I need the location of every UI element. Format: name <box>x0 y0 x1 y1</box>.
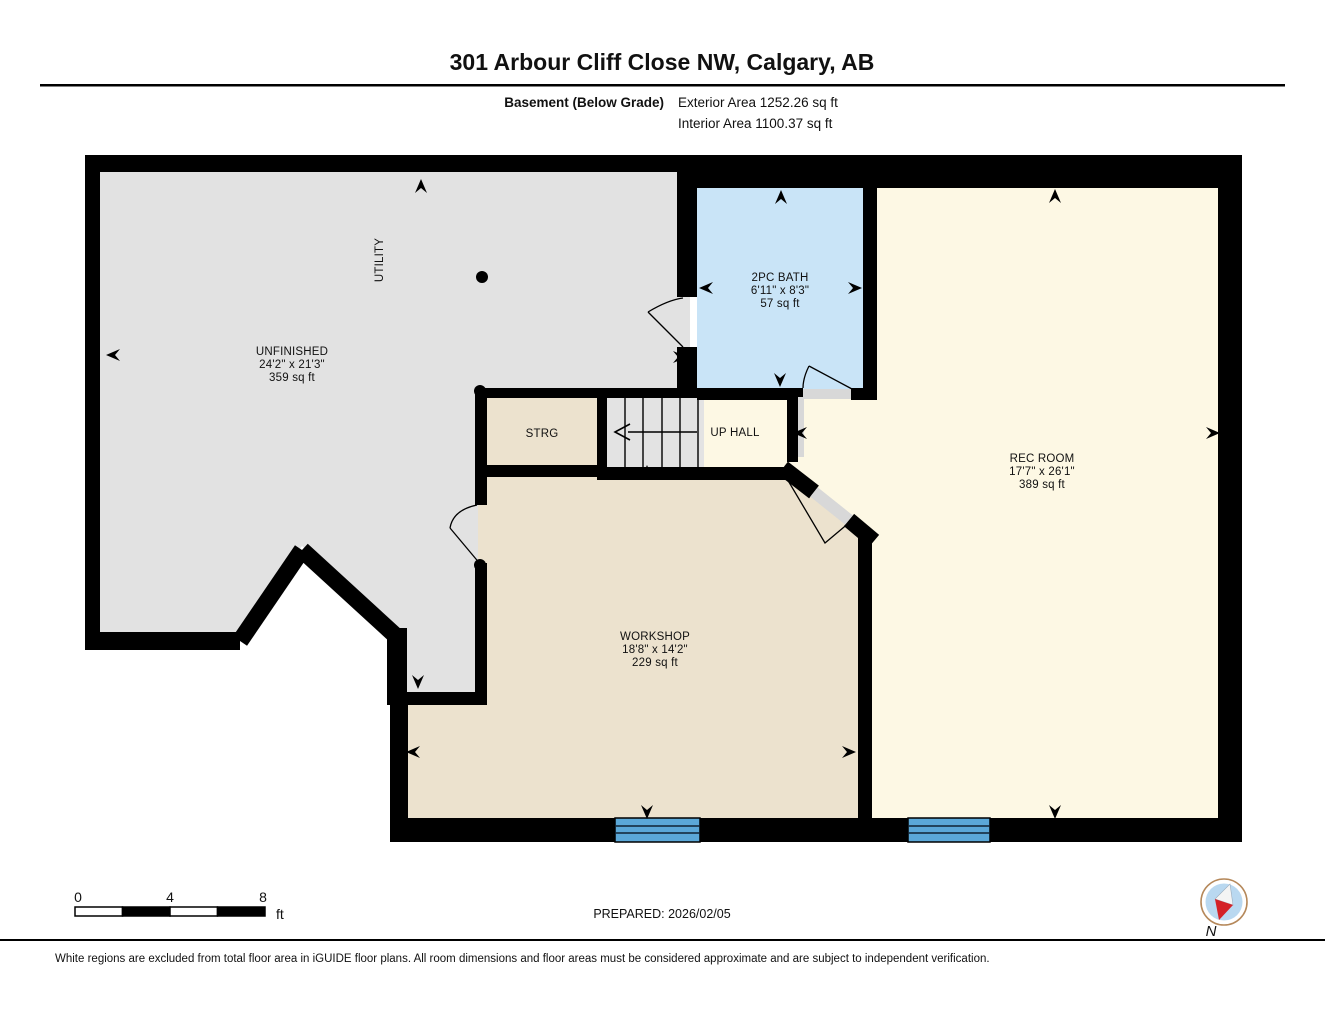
utility-name: UTILITY <box>374 238 386 282</box>
floorplan-page: 301 Arbour Cliff Close NW, Calgary, AB B… <box>0 0 1325 1024</box>
footer-divider <box>0 939 1325 941</box>
bath-door-threshold <box>803 389 851 399</box>
support-post <box>476 271 488 283</box>
wall-post <box>474 385 486 397</box>
scale-unit: ft <box>276 906 284 922</box>
bath-name: 2PC BATH <box>752 272 809 284</box>
floorplan-canvas: 301 Arbour Cliff Close NW, Calgary, AB B… <box>0 0 1325 1024</box>
room-fills <box>92 160 1236 836</box>
unfinished-area: 359 sq ft <box>269 372 316 384</box>
workshop-dimensions: 18'8" x 14'2" <box>622 644 688 656</box>
rec-room-name: REC ROOM <box>1010 453 1075 465</box>
disclaimer: White regions are excluded from total fl… <box>55 953 990 965</box>
hall-opening-strip <box>798 397 804 457</box>
window-icon <box>615 818 700 842</box>
unfinished-dimensions: 24'2" x 21'3" <box>259 359 325 371</box>
header: 301 Arbour Cliff Close NW, Calgary, AB B… <box>40 49 1285 131</box>
page-title: 301 Arbour Cliff Close NW, Calgary, AB <box>450 49 875 75</box>
up-hall-name: UP HALL <box>710 427 760 439</box>
bath-area: 57 sq ft <box>760 298 800 310</box>
wall-post <box>474 559 486 571</box>
compass-icon: N <box>1201 879 1247 940</box>
window-icon <box>908 818 990 842</box>
strg-name: STRG <box>526 428 559 440</box>
footer: 0 4 8 ft PREPARED: 2026/02/05 N White re… <box>0 879 1325 965</box>
floor-label: Basement (Below Grade) <box>504 95 664 110</box>
scale-tick-4: 4 <box>166 889 174 905</box>
north-label: N <box>1206 923 1217 940</box>
prepared-date: PREPARED: 2026/02/05 <box>593 907 730 921</box>
rec-room-area: 389 sq ft <box>1019 479 1066 491</box>
exterior-area: Exterior Area 1252.26 sq ft <box>678 95 838 110</box>
header-divider <box>40 84 1285 87</box>
unfinished-name: UNFINISHED <box>256 346 328 358</box>
scale-tick-8: 8 <box>259 889 267 905</box>
workshop-area: 229 sq ft <box>632 657 679 669</box>
scale-tick-0: 0 <box>74 889 82 905</box>
scale-bar: 0 4 8 ft <box>74 889 284 922</box>
workshop-name: WORKSHOP <box>620 631 690 643</box>
interior-area: Interior Area 1100.37 sq ft <box>678 116 833 131</box>
bath-dimensions: 6'11" x 8'3" <box>751 285 809 297</box>
rec-room-dimensions: 17'7" x 26'1" <box>1009 466 1075 478</box>
